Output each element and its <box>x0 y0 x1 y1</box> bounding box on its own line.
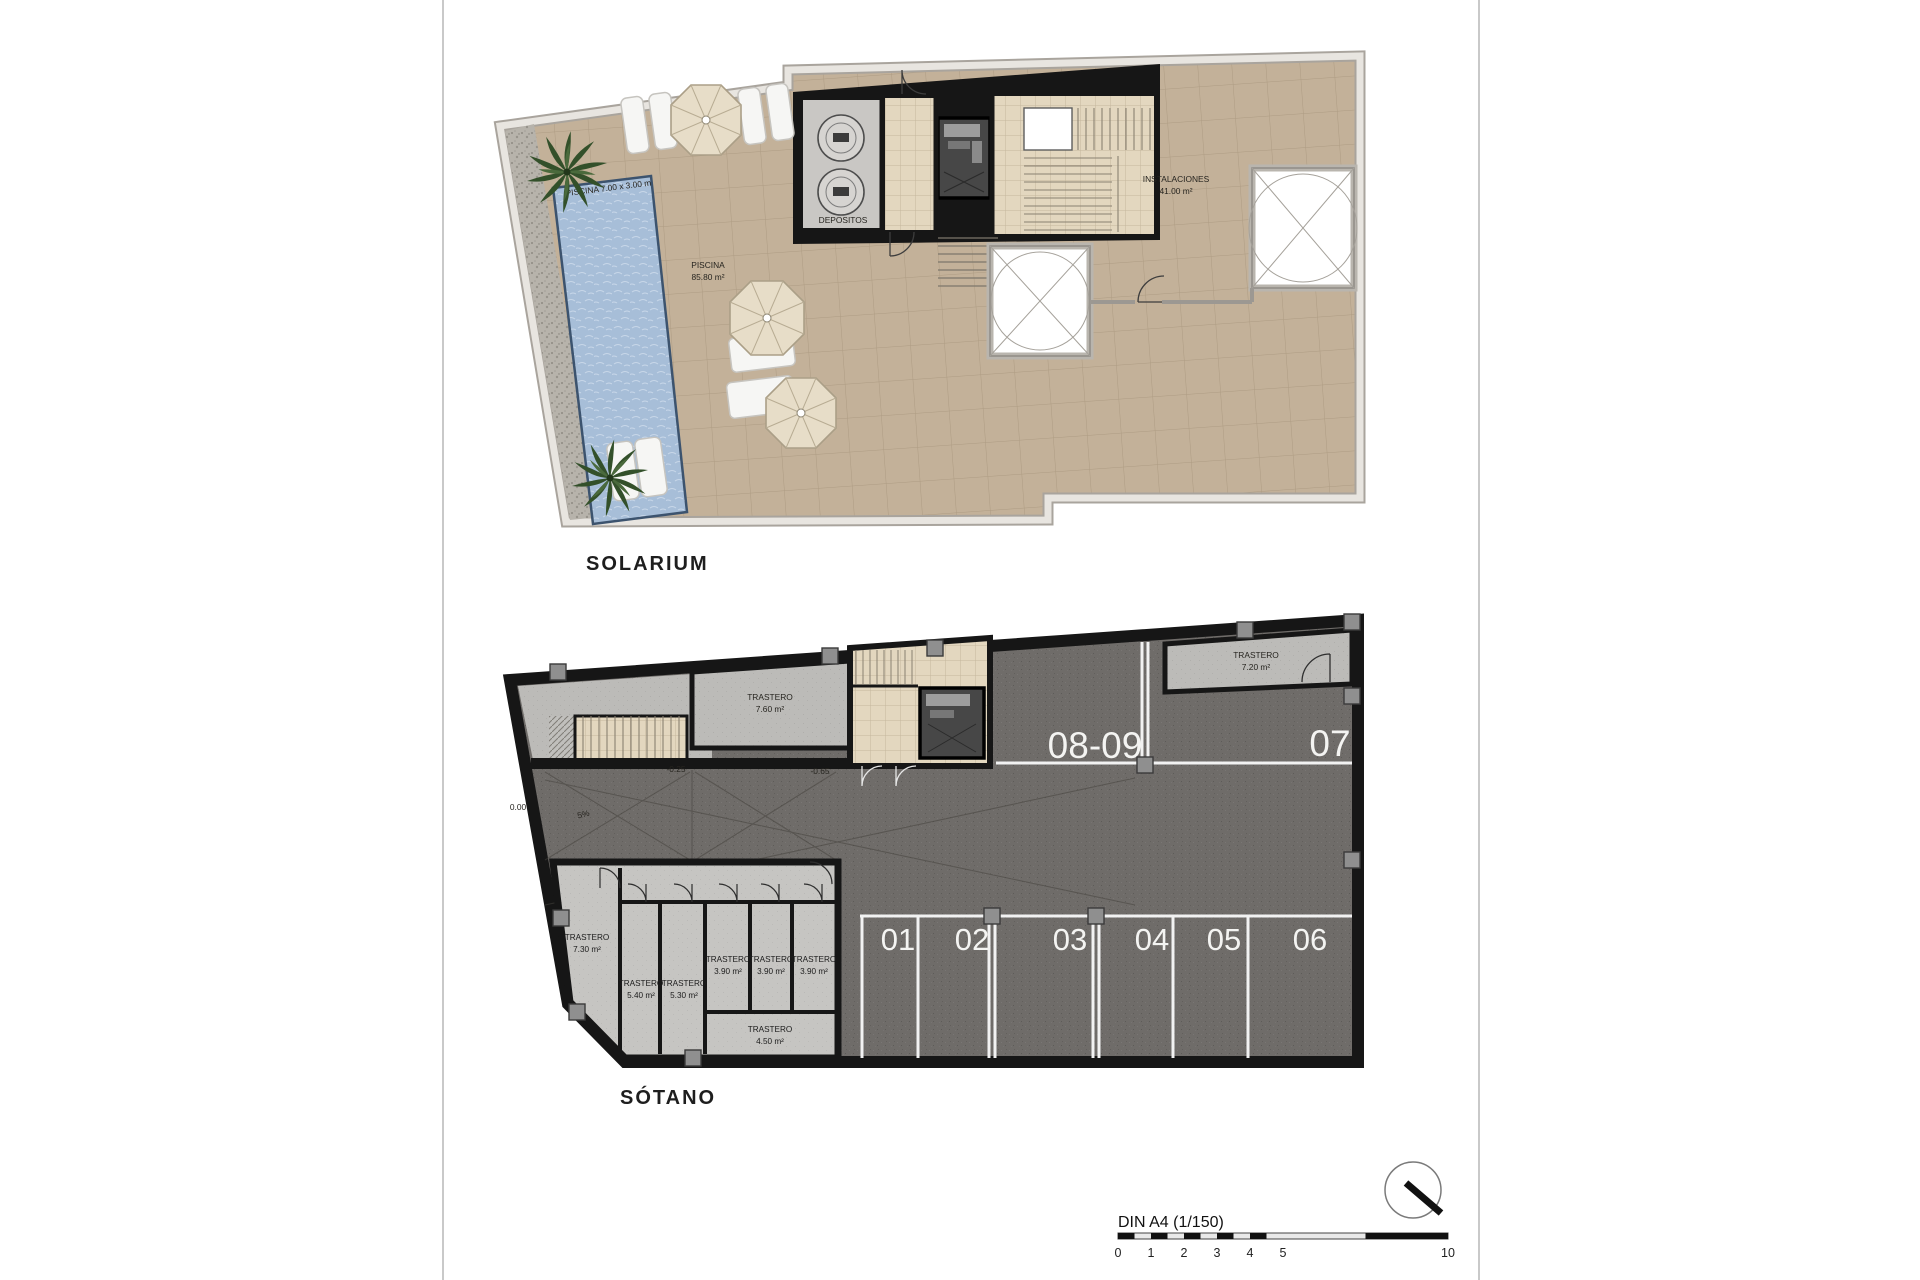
parking-space-0809: 08-09 <box>1048 725 1143 766</box>
scale-tick: 0 <box>1115 1246 1122 1260</box>
basement-wall <box>531 758 851 769</box>
instalaciones-name: INSTALACIONES <box>1143 174 1210 184</box>
water-tank-icon <box>818 115 864 161</box>
north-arrow-icon <box>1385 1162 1441 1218</box>
parking-space: 01 <box>881 922 915 957</box>
storage-room-area: 7.30 m² <box>573 945 601 954</box>
storage-room-name: TRASTERO <box>619 979 664 988</box>
umbrella-icon <box>730 281 804 355</box>
storage-room-area: 3.90 m² <box>800 967 828 976</box>
pool-area-name: PISCINA <box>691 260 725 270</box>
level-entry: 0.00 <box>510 802 527 812</box>
sotano-title: SÓTANO <box>620 1085 716 1109</box>
stairwell <box>994 96 1154 234</box>
basement-stair <box>549 716 687 760</box>
storage-room-area: 7.20 m² <box>1242 662 1271 672</box>
storage-room-area: 5.30 m² <box>670 991 698 1000</box>
level-lower: -0.65 <box>810 766 829 776</box>
solarium-plan: PISCINA 7.00 x 3.00 m PISCINA 85.80 m² D… <box>500 56 1360 575</box>
storage-room: TRASTERO 7.60 m² <box>692 661 850 748</box>
parking-space: 03 <box>1053 922 1087 957</box>
scale-title: DIN A4 (1/150) <box>1118 1214 1224 1231</box>
storage-room-area: 4.50 m² <box>756 1037 784 1046</box>
scale-tick: 1 <box>1148 1246 1155 1260</box>
basement-core <box>850 638 990 786</box>
parking-space-07: 07 <box>1309 723 1350 764</box>
roof-core: DEPOSITOS <box>793 64 1160 256</box>
storage-room-name: TRASTERO <box>749 955 794 964</box>
storage-room-name: TRASTERO <box>747 692 793 702</box>
storage-room-name: TRASTERO <box>748 1025 793 1034</box>
water-tank-icon <box>818 169 864 215</box>
storage-room-area: 5.40 m² <box>627 991 655 1000</box>
storage-room-name: TRASTERO <box>565 933 610 942</box>
plan-sheet: PISCINA 7.00 x 3.00 m PISCINA 85.80 m² D… <box>0 0 1920 1280</box>
elevator <box>938 118 990 198</box>
core-hall <box>885 98 935 230</box>
solarium-title: SOLARIUM <box>586 553 709 575</box>
storage-room-area: 7.60 m² <box>756 704 785 714</box>
instalaciones-area: 41.00 m² <box>1159 186 1192 196</box>
parking-space: 05 <box>1207 922 1241 957</box>
scale-tick: 2 <box>1181 1246 1188 1260</box>
storage-room-name: TRASTERO <box>662 979 707 988</box>
storage-room-area: 3.90 m² <box>757 967 785 976</box>
floor-plan-drawing: PISCINA 7.00 x 3.00 m PISCINA 85.80 m² D… <box>0 0 1920 1280</box>
storage-cluster: TRASTERO 7.30 m² TRASTERO 5.40 m² TRASTE… <box>553 862 838 1058</box>
scale-tick: 3 <box>1214 1246 1221 1260</box>
parking-space: 06 <box>1293 922 1327 957</box>
parking-space: 04 <box>1135 922 1169 957</box>
skylight-shaft <box>1249 168 1357 288</box>
scale-tick: 10 <box>1441 1246 1455 1260</box>
scale-tick: 4 <box>1247 1246 1254 1260</box>
elevator <box>920 688 984 758</box>
pool-area-value: 85.80 m² <box>691 272 724 282</box>
storage-room-area: 3.90 m² <box>714 967 742 976</box>
skylight-shaft <box>990 246 1090 356</box>
depositos-label: DEPOSITOS <box>819 215 868 225</box>
scale-tick: 5 <box>1280 1246 1287 1260</box>
sotano-plan: TRASTERO 7.60 m² TRASTERO 7.20 m² <box>510 614 1360 1109</box>
storage-room-name: TRASTERO <box>792 955 837 964</box>
umbrella-icon <box>766 378 836 448</box>
storage-room-name: TRASTERO <box>706 955 751 964</box>
level-mid: -0.25 <box>666 764 685 774</box>
scale-bar: DIN A4 (1/150) 0 1 2 3 4 5 10 <box>1115 1214 1455 1260</box>
storage-room-name: TRASTERO <box>1233 650 1279 660</box>
parking-space: 02 <box>955 922 989 957</box>
umbrella-icon <box>671 85 741 155</box>
